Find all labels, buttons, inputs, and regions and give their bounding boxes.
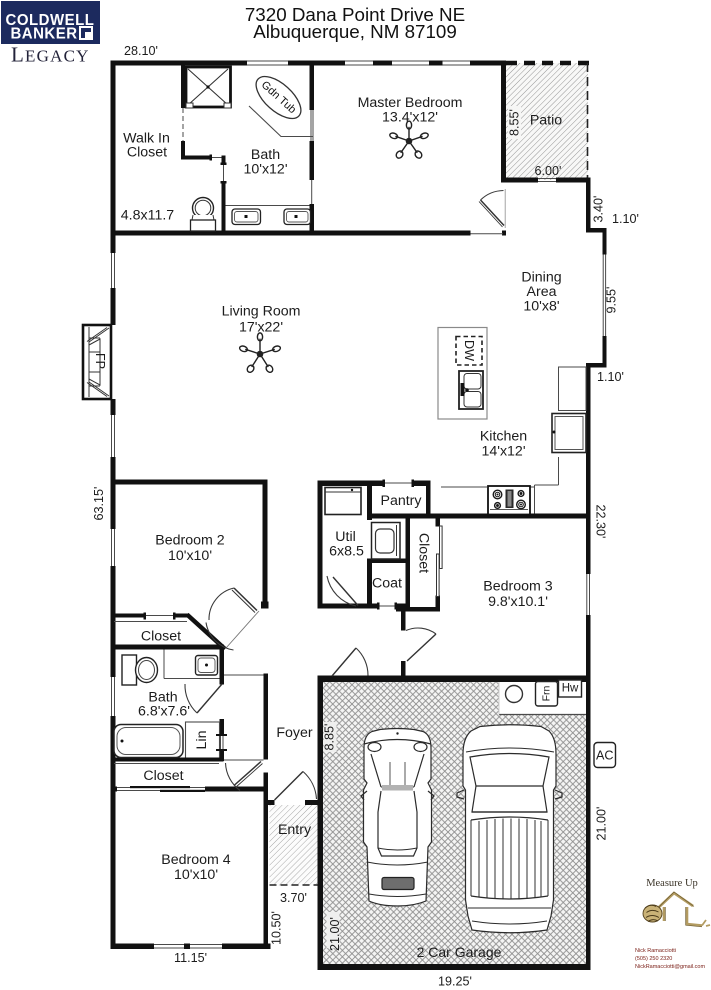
svg-text:Pantry: Pantry [380,493,422,509]
svg-text:3.40': 3.40' [592,196,606,223]
svg-text:Coat: Coat [372,576,402,592]
svg-text:FP: FP [93,353,107,369]
svg-text:Frn: Frn [541,685,553,701]
svg-text:Hw: Hw [562,683,579,695]
svg-text:13.4'x12': 13.4'x12' [382,110,438,126]
svg-text:1.10': 1.10' [597,370,624,384]
svg-text:63.15': 63.15' [92,487,106,521]
svg-text:9.55': 9.55' [605,287,619,314]
svg-text:Closet: Closet [143,768,183,784]
svg-text:10'x12': 10'x12' [243,162,287,178]
svg-text:(505) 250 2320: (505) 250 2320 [635,956,672,962]
svg-text:Patio: Patio [530,113,562,129]
svg-text:6.00': 6.00' [535,164,562,178]
svg-text:17'x22': 17'x22' [239,320,283,336]
svg-text:10'x10': 10'x10' [168,548,212,564]
svg-text:9.8'x10.1': 9.8'x10.1' [488,594,548,610]
svg-text:8.85': 8.85' [323,724,337,751]
svg-text:6x8.5: 6x8.5 [329,544,364,560]
svg-text:Lin: Lin [194,731,210,750]
svg-text:2 Car Garage: 2 Car Garage [417,944,502,960]
svg-text:21.00': 21.00' [595,807,609,841]
svg-text:3.70': 3.70' [280,891,307,905]
svg-text:6.8'x7.6': 6.8'x7.6' [138,704,190,720]
svg-text:28.10': 28.10' [124,44,158,58]
svg-text:10.50': 10.50' [270,911,284,945]
svg-text:Foyer: Foyer [276,725,313,741]
svg-text:Bedroom 3: Bedroom 3 [483,579,553,595]
svg-text:Nick Ramacciotti: Nick Ramacciotti [635,948,676,954]
svg-text:Entry: Entry [278,822,312,838]
svg-text:Bedroom 4: Bedroom 4 [161,852,231,868]
svg-text:10'x8': 10'x8' [523,299,559,315]
svg-text:BANKER: BANKER [10,25,77,42]
svg-text:Bedroom 2: Bedroom 2 [155,533,225,549]
svg-text:LEGACY: LEGACY [11,43,90,67]
svg-text:4.8x11.7: 4.8x11.7 [121,208,174,224]
svg-text:21.00': 21.00' [328,917,342,951]
svg-text:1.10': 1.10' [612,212,639,226]
svg-text:Albuquerque, NM 87109: Albuquerque, NM 87109 [253,21,457,42]
svg-text:Kitchen: Kitchen [480,429,527,445]
svg-text:Closet: Closet [127,145,167,161]
svg-text:11.15': 11.15' [174,951,207,965]
svg-text:14'x12': 14'x12' [481,444,525,460]
svg-text:10'x10': 10'x10' [174,867,218,883]
svg-text:Measure Up: Measure Up [646,878,698,889]
svg-text:Closet: Closet [416,533,432,573]
svg-text:22.30': 22.30' [594,505,608,539]
svg-text:AC: AC [596,749,614,763]
svg-text:DW: DW [462,340,476,361]
svg-text:Closet: Closet [141,629,181,645]
svg-text:19.25': 19.25' [438,975,472,989]
svg-text:8.55': 8.55' [508,109,522,136]
svg-text:Living Room: Living Room [222,304,301,320]
svg-text:NickRamacciotti@gmail.com: NickRamacciotti@gmail.com [635,964,705,970]
